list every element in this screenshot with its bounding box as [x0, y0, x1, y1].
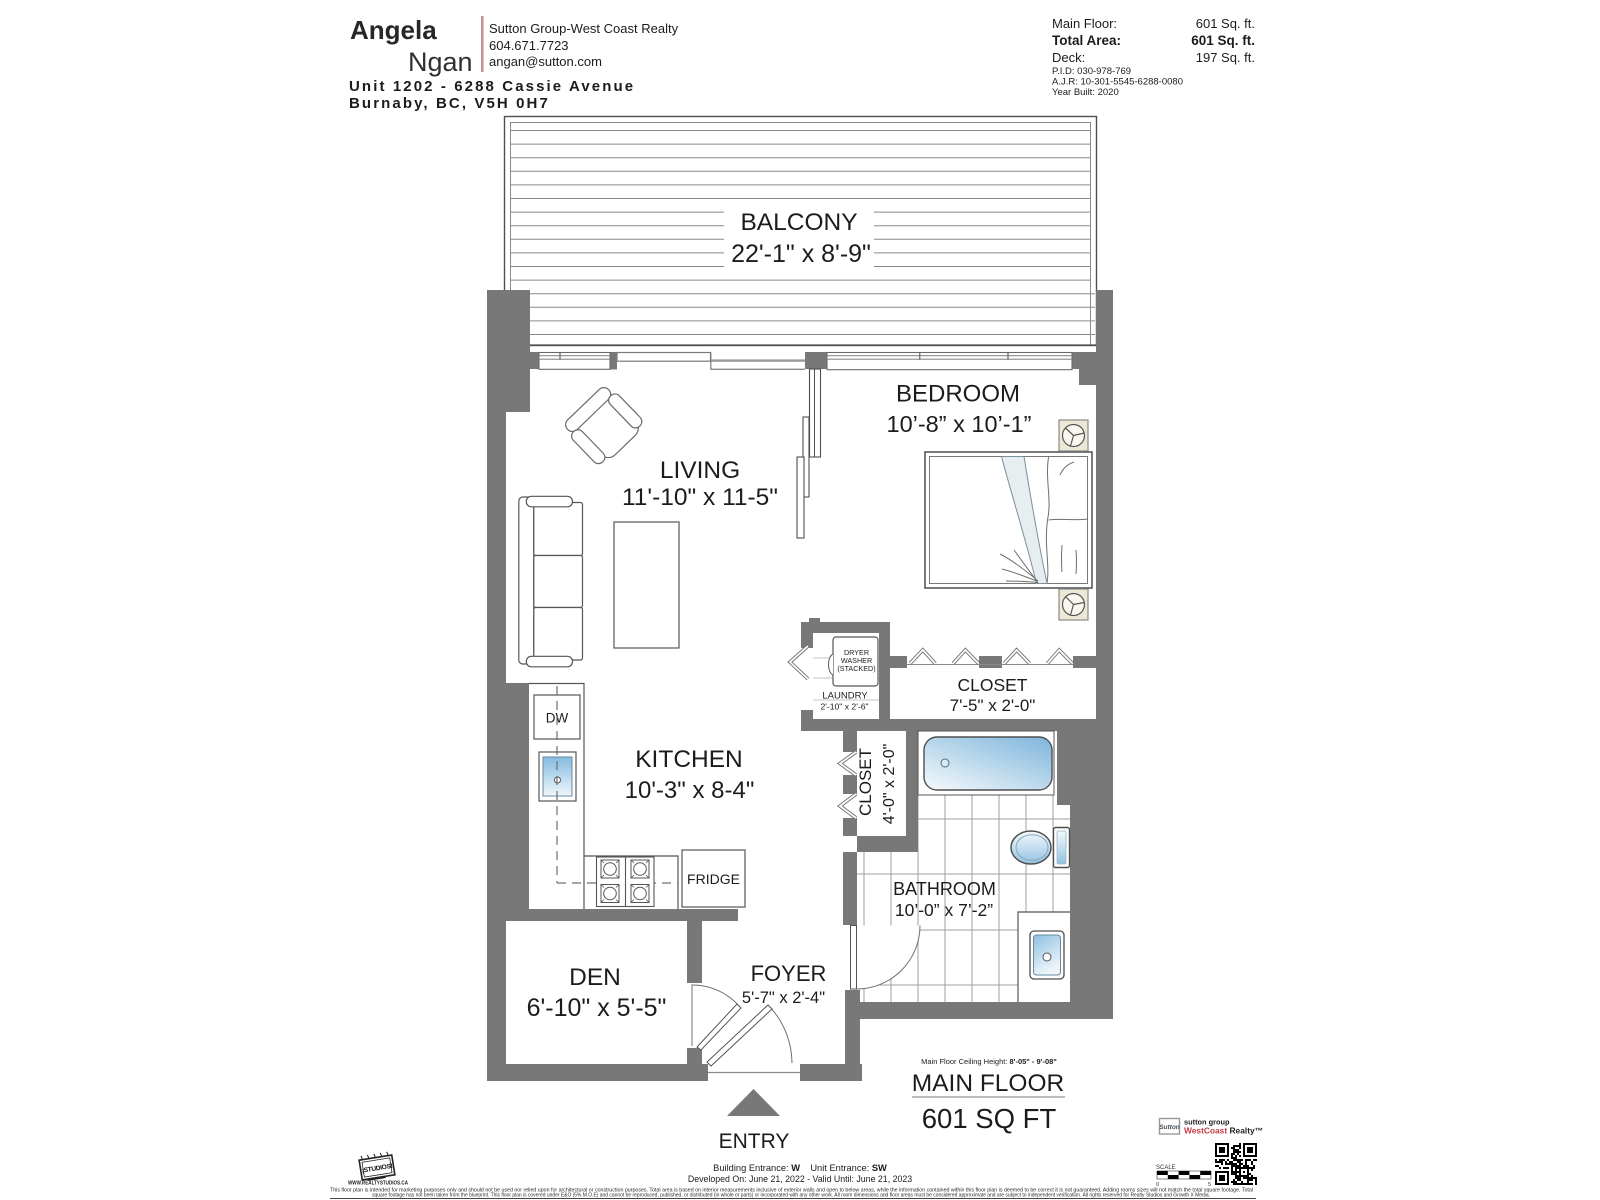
svg-text:DEN: DEN	[569, 964, 621, 991]
svg-text:BEDROOM: BEDROOM	[896, 381, 1020, 408]
svg-text:5'-7" x 2'-4": 5'-7" x 2'-4"	[742, 989, 825, 1007]
svg-text:Angela: Angela	[350, 15, 437, 45]
svg-text:197 Sq. ft.: 197 Sq. ft.	[1196, 50, 1255, 65]
svg-text:Sutton: Sutton	[1159, 1124, 1180, 1131]
svg-text:6'-10" x 5'-5": 6'-10" x 5'-5"	[527, 994, 667, 1022]
svg-text:10'-3" x 8-4": 10'-3" x 8-4"	[625, 777, 755, 804]
svg-text:WestCoast: WestCoast	[1184, 1126, 1227, 1136]
svg-text:Main Floor Ceiling Height: 8'-: Main Floor Ceiling Height: 8'-05" - 9'-0…	[921, 1057, 1057, 1066]
svg-text:Developed On: June 21, 2022 -: Developed On: June 21, 2022 - Valid Unti…	[688, 1174, 912, 1184]
svg-text:Main Floor:: Main Floor:	[1052, 16, 1117, 31]
svg-text:CLOSET: CLOSET	[856, 748, 875, 816]
svg-text:10’-0” x 7’-2”: 10’-0” x 7’-2”	[895, 900, 993, 920]
svg-text:2'-10" x 2'-6": 2'-10" x 2'-6"	[820, 702, 868, 712]
svg-text:5: 5	[1208, 1182, 1211, 1188]
svg-text:10’-8” x 10’-1”: 10’-8” x 10’-1”	[887, 411, 1032, 437]
svg-text:11'-10" x 11-5": 11'-10" x 11-5"	[622, 484, 778, 511]
svg-text:MAIN FLOOR: MAIN FLOOR	[912, 1070, 1064, 1097]
svg-text:P.I.D: 030-978-769: P.I.D: 030-978-769	[1052, 66, 1131, 77]
svg-text:A.J.R: 10-301-5545-6288-0080: A.J.R: 10-301-5545-6288-0080	[1052, 77, 1183, 88]
svg-text:angan@sutton.com: angan@sutton.com	[489, 54, 602, 69]
svg-text:601 Sq. ft.: 601 Sq. ft.	[1196, 16, 1255, 31]
svg-text:0: 0	[1156, 1182, 1159, 1188]
svg-text:Year Built: 2020: Year Built: 2020	[1052, 87, 1119, 98]
svg-text:BATHROOM: BATHROOM	[893, 879, 996, 899]
svg-text:square footage has not been ta: square footage has not been taken from t…	[372, 1193, 1210, 1199]
svg-text:Total Area:: Total Area:	[1052, 33, 1121, 48]
svg-text:SCALE: SCALE	[1156, 1165, 1176, 1171]
svg-text:Unit 1202 - 6288 Cassie Avenue: Unit 1202 - 6288 Cassie Avenue	[349, 78, 635, 95]
svg-text:FRIDGE: FRIDGE	[687, 871, 740, 887]
svg-text:LAUNDRY: LAUNDRY	[822, 691, 868, 702]
svg-text:22'-1" x 8'-9": 22'-1" x 8'-9"	[731, 240, 871, 268]
svg-text:FOYER: FOYER	[751, 961, 827, 986]
svg-text:4'-0" x 2'-0": 4'-0" x 2'-0"	[881, 744, 898, 825]
svg-text:601 SQ FT: 601 SQ FT	[922, 1103, 1057, 1134]
svg-text:Deck:: Deck:	[1052, 50, 1085, 65]
svg-text:7'-5" x 2'-0": 7'-5" x 2'-0"	[950, 696, 1036, 715]
svg-text:BALCONY: BALCONY	[740, 209, 857, 236]
svg-text:601 Sq. ft.: 601 Sq. ft.	[1191, 33, 1255, 48]
svg-text:(STACKED): (STACKED)	[837, 664, 875, 673]
svg-text:KITCHEN: KITCHEN	[635, 746, 743, 773]
svg-text:604.671.7723: 604.671.7723	[489, 38, 569, 53]
svg-text:Ngan: Ngan	[408, 47, 473, 77]
svg-text:Sutton Group-West Coast Realty: Sutton Group-West Coast Realty	[489, 21, 679, 36]
svg-text:CLOSET: CLOSET	[957, 675, 1027, 695]
svg-text:LIVING: LIVING	[660, 457, 740, 484]
svg-text:ENTRY: ENTRY	[719, 1130, 790, 1153]
svg-text:Building Entrance: W Unit E: Building Entrance: W Unit Entrance: SW	[713, 1163, 887, 1173]
svg-text:Burnaby, BC, V5H 0H7: Burnaby, BC, V5H 0H7	[349, 95, 550, 112]
svg-text:WWW.REALTYSTUDIOS.CA: WWW.REALTYSTUDIOS.CA	[348, 1181, 408, 1187]
svg-text:Realty™: Realty™	[1230, 1126, 1264, 1136]
